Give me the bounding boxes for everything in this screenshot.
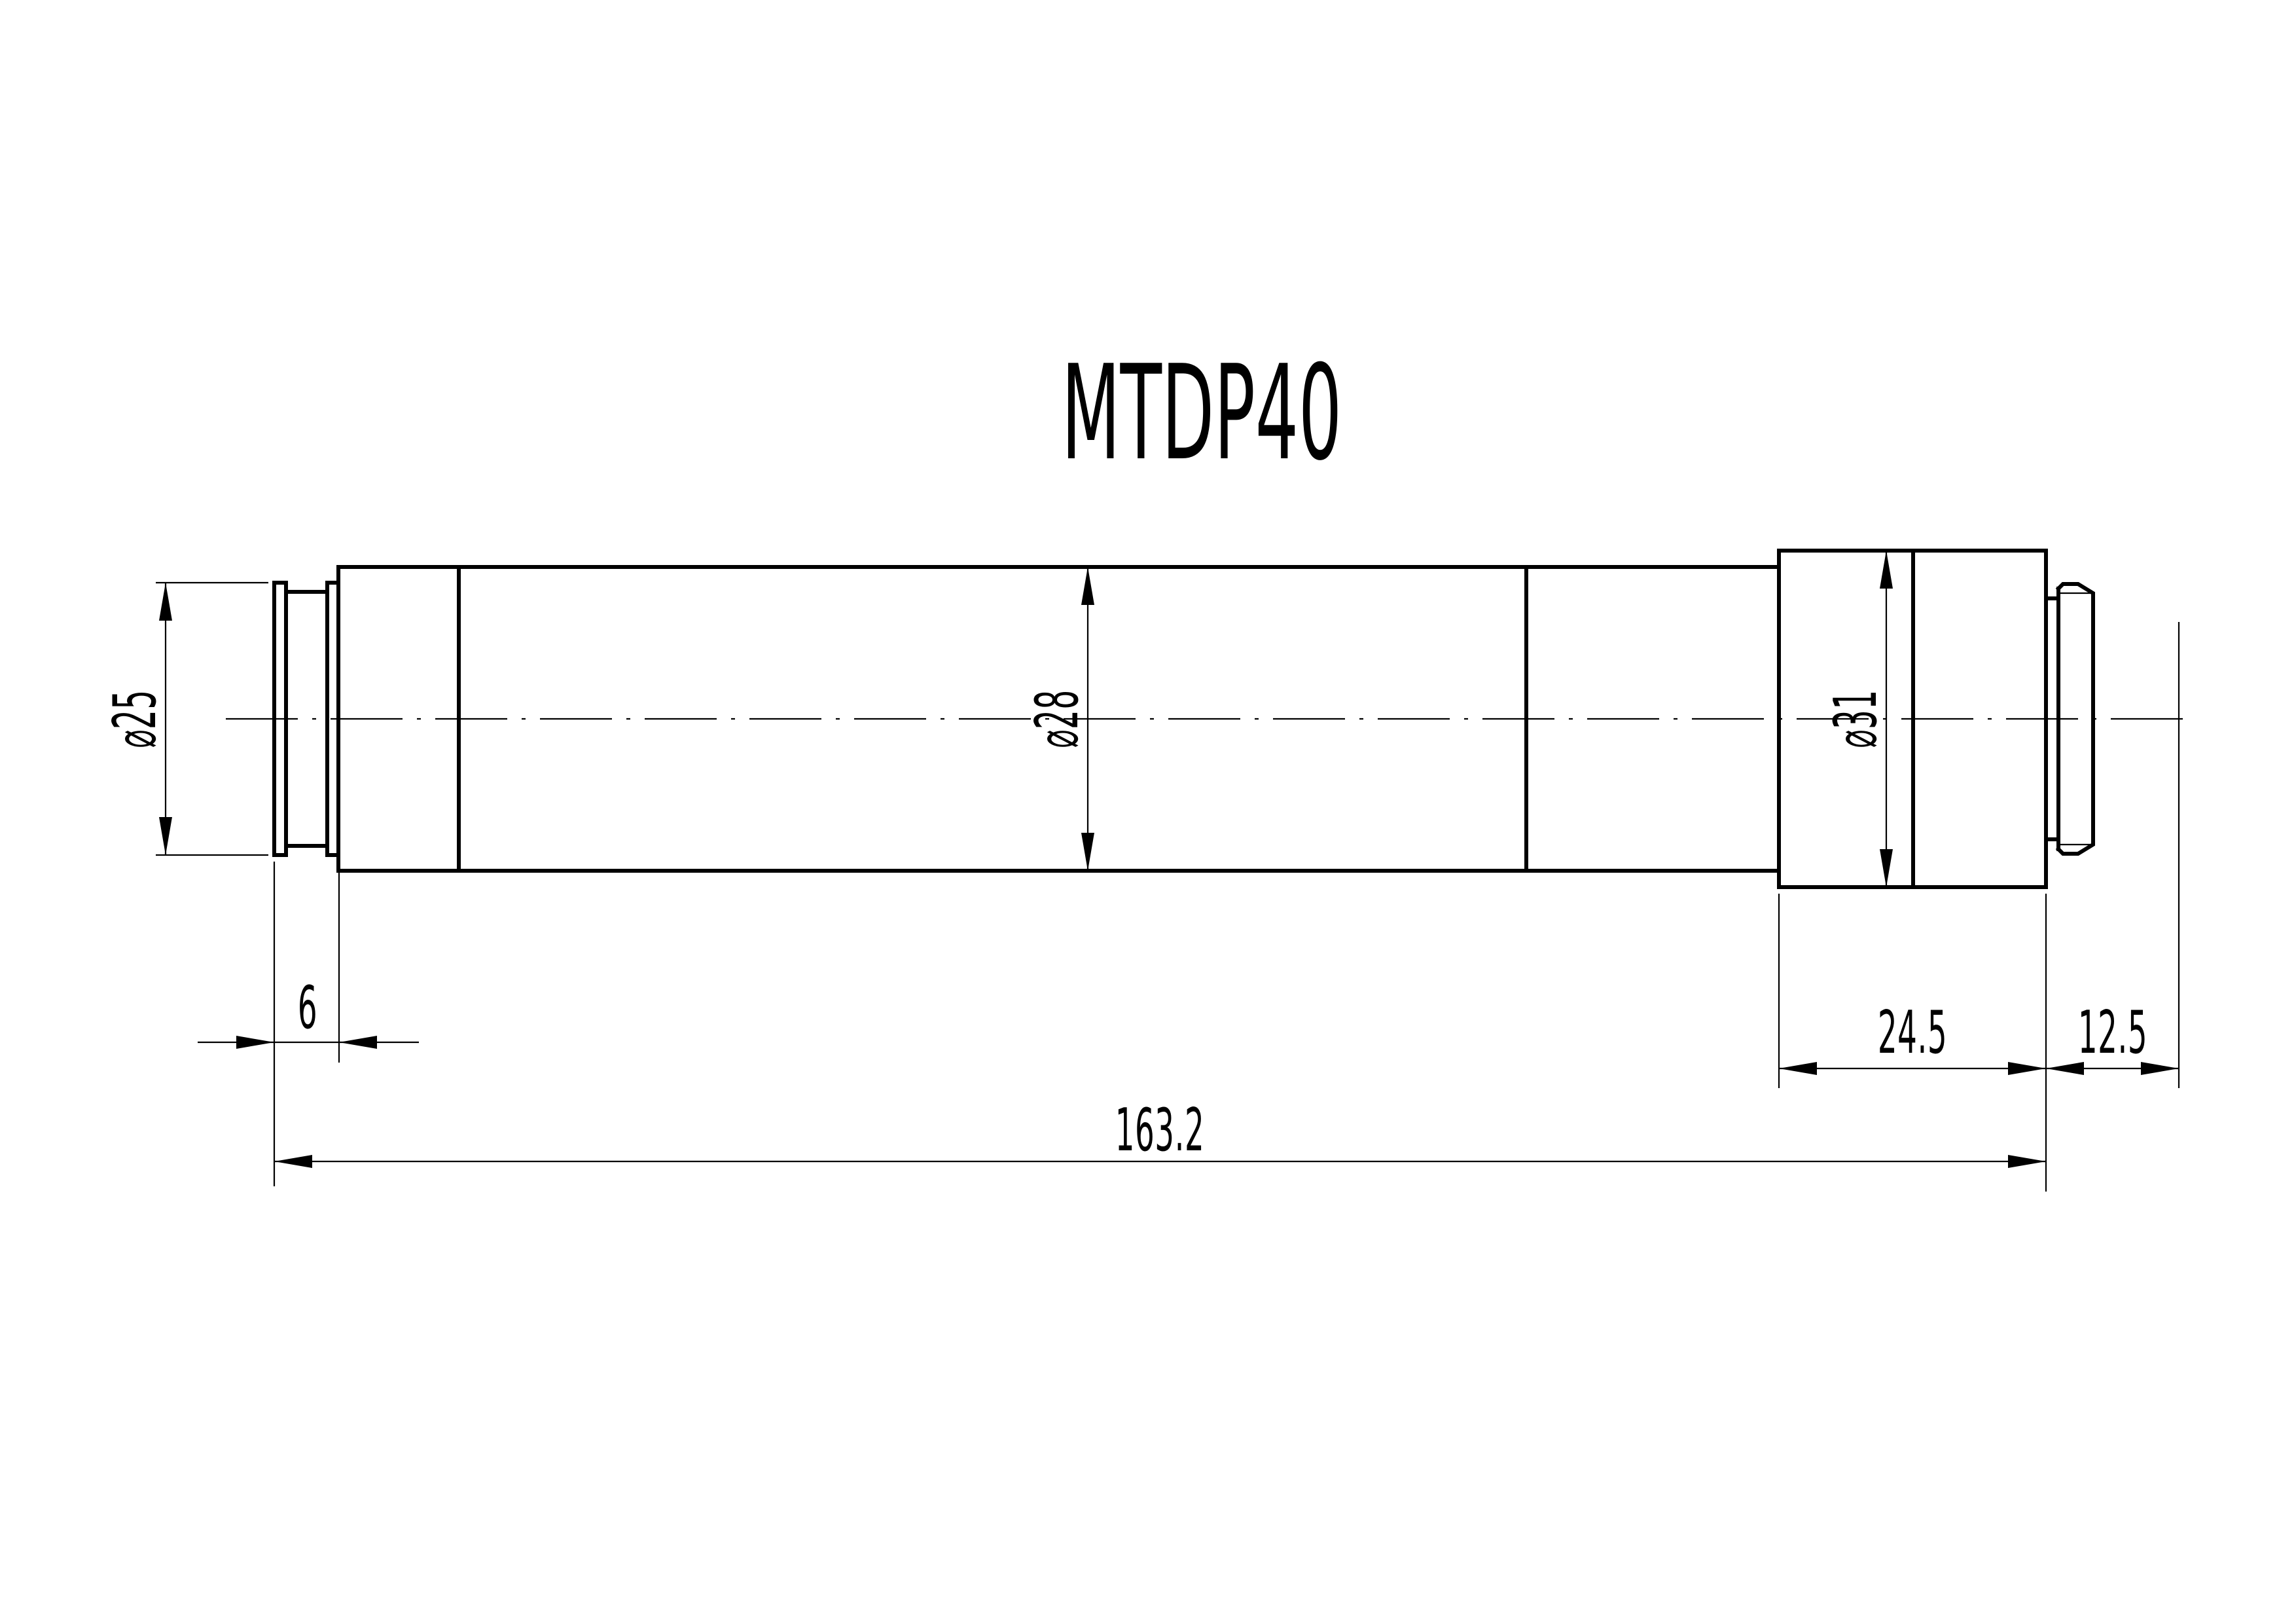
dimension-label-163-2: 163.2 <box>1115 1095 1205 1164</box>
arrowhead <box>2008 1062 2046 1075</box>
dimension-dia-31: ⌀31 <box>1821 551 1893 887</box>
dimension-label-dia31: ⌀31 <box>1821 689 1890 748</box>
part-title: MTDP40 <box>1062 337 1342 489</box>
arrowhead <box>236 1036 274 1049</box>
dimension-label-dia28: ⌀28 <box>1022 689 1091 748</box>
dimension-length-6: 6 <box>198 862 419 1186</box>
arrowhead <box>1779 1062 1817 1075</box>
arrowhead <box>1081 567 1094 605</box>
dimension-length-163-2: 163.2 <box>274 894 2046 1192</box>
arrowhead <box>339 1036 377 1049</box>
arrowhead <box>159 817 172 855</box>
dimension-label-12-5: 12.5 <box>2078 998 2147 1067</box>
drawing-sheet: ⌀25 ⌀28 ⌀31 6 24.5 12.5 <box>0 0 2296 1623</box>
drawing-canvas: ⌀25 ⌀28 ⌀31 6 24.5 12.5 <box>0 0 2296 1623</box>
dimension-label-dia25: ⌀25 <box>100 689 169 748</box>
dimension-dia-28: ⌀28 <box>1022 567 1094 871</box>
arrowhead <box>159 583 172 621</box>
arrowhead <box>1880 849 1893 887</box>
dimension-label-6: 6 <box>298 973 317 1042</box>
arrowhead <box>2008 1155 2046 1168</box>
arrowhead <box>1880 551 1893 589</box>
dimension-length-24-5: 24.5 <box>1779 894 2046 1088</box>
arrowhead <box>1081 833 1094 871</box>
arrowhead <box>274 1155 312 1168</box>
dimension-label-24-5: 24.5 <box>1878 998 1947 1067</box>
